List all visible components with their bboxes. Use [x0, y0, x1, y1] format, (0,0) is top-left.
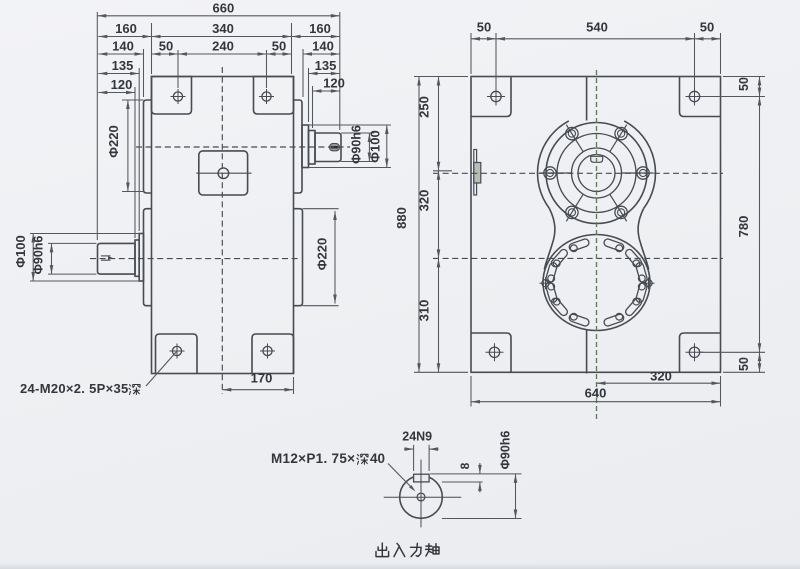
svg-text:320: 320 — [650, 369, 672, 384]
svg-text:135: 135 — [112, 58, 134, 73]
svg-text:880: 880 — [394, 207, 409, 229]
svg-text:M12×P1. 75×: M12×P1. 75× — [271, 451, 355, 466]
svg-text:320: 320 — [417, 190, 432, 212]
svg-text:250: 250 — [417, 96, 432, 118]
svg-text:135: 135 — [315, 58, 337, 73]
svg-text:120: 120 — [323, 76, 345, 91]
svg-text:40: 40 — [370, 451, 385, 466]
svg-text:170: 170 — [251, 371, 273, 386]
svg-text:780: 780 — [736, 216, 751, 238]
svg-text:140: 140 — [312, 39, 334, 54]
svg-text:140: 140 — [112, 39, 134, 54]
svg-text:Φ220: Φ220 — [315, 238, 330, 270]
svg-text:Φ100: Φ100 — [368, 130, 383, 162]
svg-text:Φ220: Φ220 — [106, 125, 121, 157]
svg-text:540: 540 — [586, 20, 608, 35]
svg-text:24-M20×2. 5P×35: 24-M20×2. 5P×35 — [20, 381, 129, 396]
svg-text:24N9: 24N9 — [402, 430, 432, 444]
svg-text:310: 310 — [417, 300, 432, 322]
svg-text:50: 50 — [737, 77, 751, 91]
svg-text:50: 50 — [159, 39, 173, 54]
svg-text:160: 160 — [309, 21, 331, 36]
svg-text:50: 50 — [737, 357, 751, 371]
svg-text:660: 660 — [213, 0, 235, 15]
svg-text:Φ90h6: Φ90h6 — [499, 431, 513, 470]
svg-text:240: 240 — [212, 39, 234, 54]
svg-text:50: 50 — [272, 39, 286, 54]
svg-text:Φ100: Φ100 — [13, 235, 28, 267]
svg-text:8: 8 — [458, 462, 472, 469]
svg-text:50: 50 — [700, 20, 714, 35]
svg-text:160: 160 — [115, 21, 137, 36]
svg-text:340: 340 — [212, 21, 234, 36]
svg-text:640: 640 — [585, 386, 607, 401]
svg-text:Φ90h6: Φ90h6 — [350, 125, 364, 164]
svg-text:120: 120 — [111, 77, 133, 92]
svg-text:Φ90h6: Φ90h6 — [32, 236, 46, 275]
svg-text:50: 50 — [477, 20, 491, 35]
